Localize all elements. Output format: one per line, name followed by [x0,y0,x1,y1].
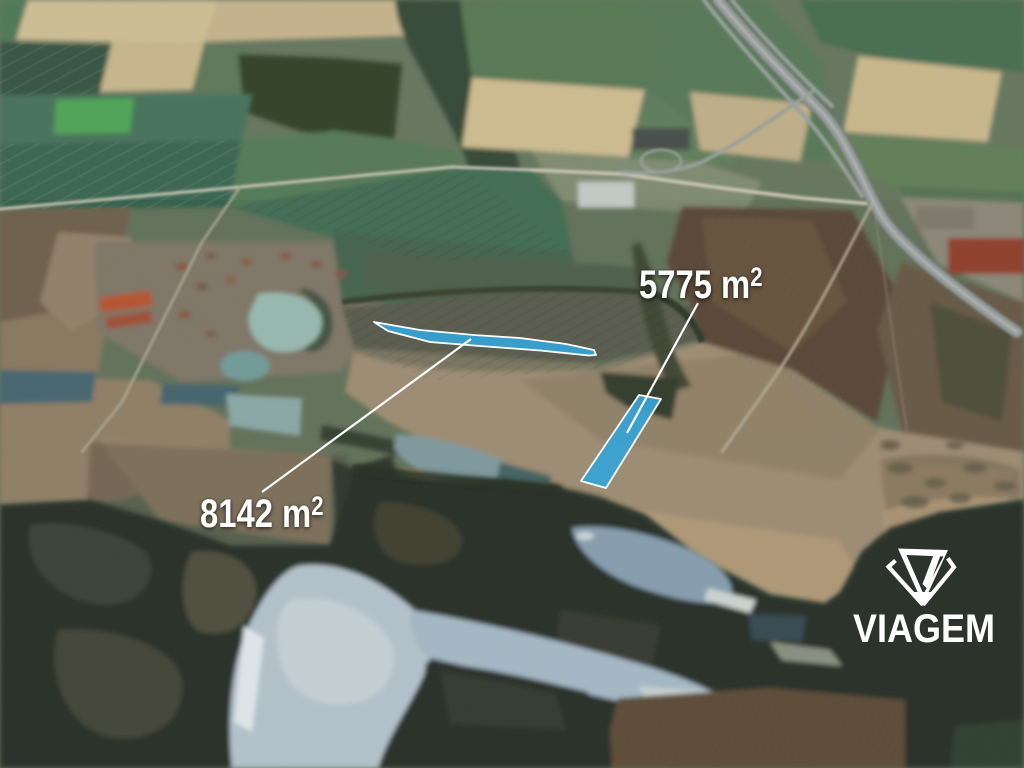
svg-text:5775 m2: 5775 m2 [639,262,763,307]
svg-text:8142 m2: 8142 m2 [200,491,324,536]
svg-text:VIAGEM: VIAGEM [853,607,995,651]
